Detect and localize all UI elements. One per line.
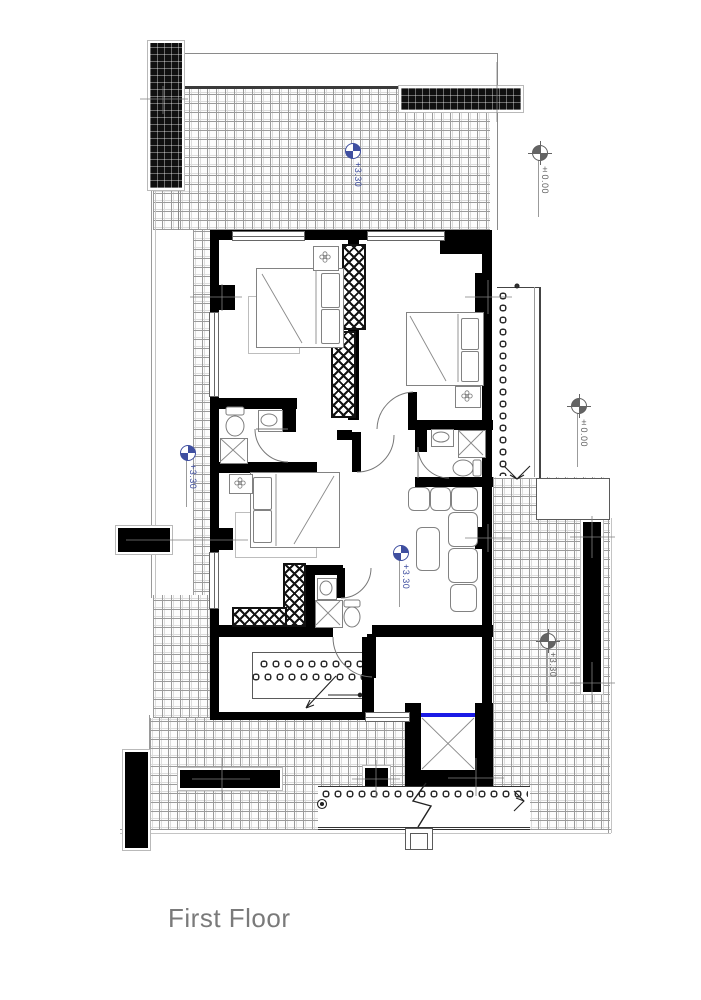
toilet-bowl-bath3 <box>453 460 473 476</box>
elevation-label-terrace-w: +3.30 <box>188 464 198 489</box>
bed1-fold-lines <box>262 270 316 344</box>
east-stair-arrow <box>504 466 530 479</box>
elevation-marker-living-stem <box>399 559 400 607</box>
elevation-label-terrace-top: +3.30 <box>353 162 363 187</box>
elevation-label-terrace-se: +3.30 <box>548 652 558 677</box>
elevator-x-cross <box>422 718 474 769</box>
toilet-tank-bath2 <box>344 600 360 607</box>
elevation-marker-site-e <box>571 398 587 414</box>
internal-stair-arrow <box>306 676 336 708</box>
toilet-bowl-bath1 <box>226 416 244 436</box>
south-stair-break-line <box>413 783 431 827</box>
elevation-marker-terrace-se <box>540 633 556 649</box>
elevation-label-site-e: ±0.00 <box>579 417 589 447</box>
sink-basin-bath1 <box>261 414 277 426</box>
shower-x-bath3 <box>459 431 483 455</box>
elevation-marker-terrace-top <box>345 143 361 159</box>
flower-icon-group <box>235 252 472 488</box>
toilet-bowl-bath2 <box>344 607 360 627</box>
elevation-marker-terrace-w-stem <box>186 459 187 507</box>
elevation-marker-living <box>393 545 409 561</box>
door-arc-hall-south <box>333 637 372 677</box>
elevation-marker-terrace-top-stem <box>351 157 352 212</box>
door-arc-bedroom2 <box>377 392 413 429</box>
elevation-label-site-ne: ±0.00 <box>540 164 550 194</box>
elevation-marker-terrace-se-stem <box>546 647 547 702</box>
shower-x-bath2 <box>316 601 340 625</box>
door-arc-hall-north <box>357 435 394 472</box>
toilet-tank-bath1 <box>226 407 244 415</box>
sink-basin-bath3 <box>433 432 449 442</box>
elevation-marker-site-ne <box>532 145 548 161</box>
shower-x-bath1 <box>221 439 245 461</box>
sink-basin-bath2 <box>320 581 332 595</box>
bed2-fold-lines <box>410 314 458 382</box>
elevation-marker-terrace-w <box>180 445 196 461</box>
floor-plan-page: +3.30 ±0.00 ±0.00 +3.30 +3.30 +3.30 Firs… <box>0 0 701 1000</box>
south-stair-start-ring-dot <box>321 803 324 806</box>
east-stair-start-dot <box>515 284 519 288</box>
door-arc-bath1 <box>255 429 288 462</box>
bed3-fold-lines <box>276 474 334 546</box>
south-stair-arrow <box>514 791 524 811</box>
internal-stair-path-dot <box>358 693 362 697</box>
elevation-marker-site-ne-stem <box>538 159 539 217</box>
door-arc-bath3 <box>418 447 449 478</box>
door-arc-bath2 <box>341 568 371 598</box>
page-title: First Floor <box>168 903 291 934</box>
toilet-tank-bath3 <box>473 460 481 476</box>
elevation-label-living: +3.30 <box>401 564 411 589</box>
elevation-marker-site-e-stem <box>577 412 578 467</box>
